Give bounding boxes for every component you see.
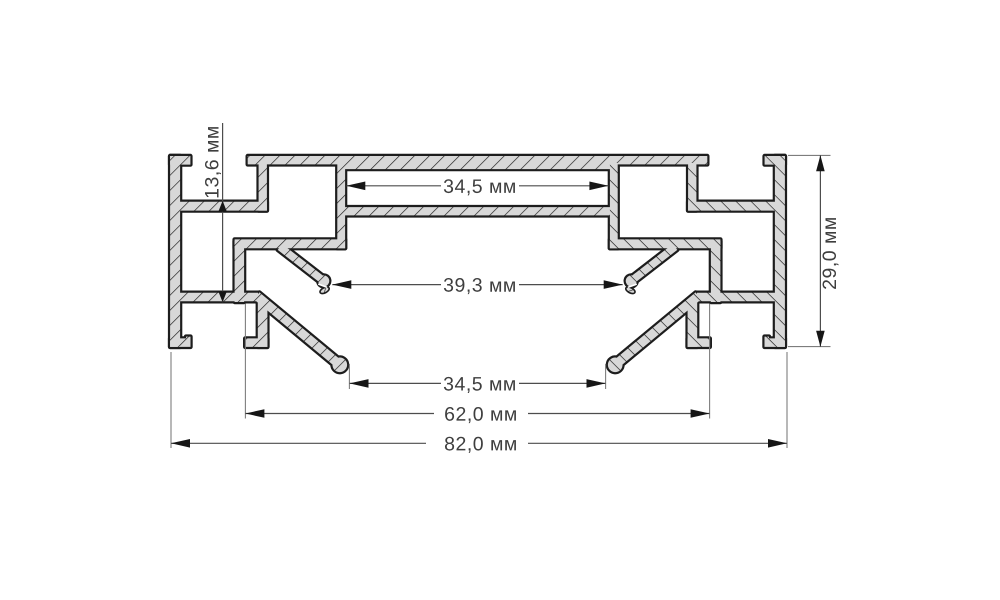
svg-text:39,3 мм: 39,3 мм [443,275,517,297]
svg-text:34,5 мм: 34,5 мм [443,176,517,198]
svg-text:29,0 мм: 29,0 мм [819,216,841,290]
svg-text:34,5 мм: 34,5 мм [443,373,517,395]
svg-text:13,6 мм: 13,6 мм [201,125,223,199]
svg-text:62,0 мм: 62,0 мм [444,404,518,426]
svg-text:82,0 мм: 82,0 мм [444,433,518,455]
